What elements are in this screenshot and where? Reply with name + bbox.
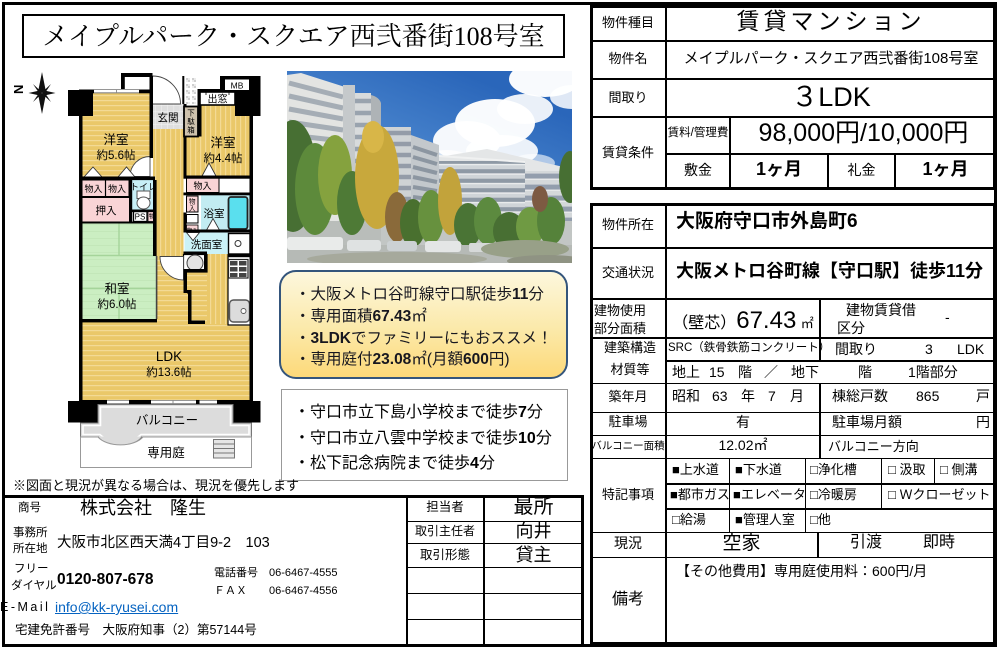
svg-text:専用庭: 専用庭: [147, 446, 185, 460]
svg-text:約13.6帖: 約13.6帖: [146, 365, 191, 379]
svg-text:浴室: 浴室: [204, 207, 225, 220]
svg-text:和室: 和室: [104, 282, 129, 296]
svg-text:駄: 駄: [187, 116, 195, 126]
svg-text:約6.0帖: 約6.0帖: [98, 297, 137, 311]
svg-text:約5.6帖: 約5.6帖: [97, 148, 136, 162]
svg-text:箱: 箱: [187, 125, 195, 135]
svg-text:物入: 物入: [193, 180, 211, 191]
svg-text:バルコニー: バルコニー: [136, 414, 198, 428]
svg-text:物: 物: [189, 197, 196, 206]
svg-text:N: N: [11, 85, 26, 94]
svg-text:洋室: 洋室: [210, 135, 235, 150]
svg-text:入: 入: [189, 205, 196, 213]
svg-text:洋室: 洋室: [103, 132, 128, 147]
svg-text:洗面室: 洗面室: [191, 239, 223, 251]
svg-text:玄関: 玄関: [158, 111, 179, 124]
svg-text:出窓: 出窓: [208, 94, 228, 106]
svg-text:物入: 物入: [84, 183, 102, 194]
svg-text:物入: 物入: [108, 183, 126, 194]
svg-text:MB: MB: [231, 81, 244, 91]
svg-text:押入: 押入: [96, 204, 117, 217]
svg-text:PS: PS: [135, 213, 146, 222]
svg-text:LDK: LDK: [156, 349, 182, 364]
